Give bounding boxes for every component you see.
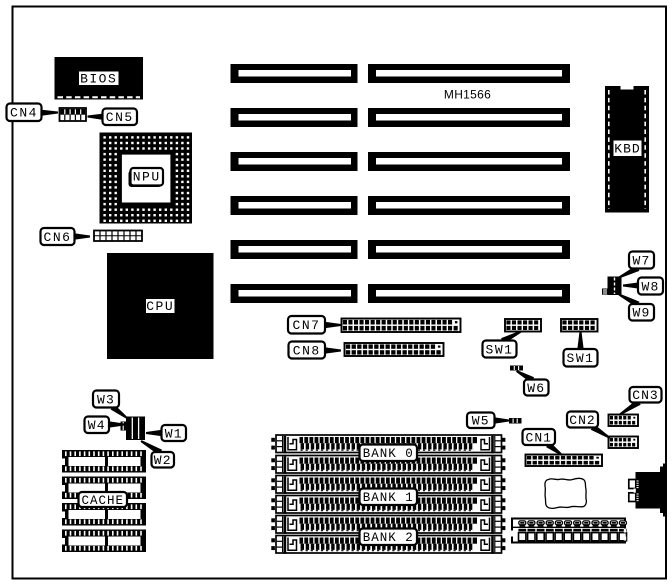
svg-text:CN6: CN6 — [44, 230, 72, 245]
svg-text:W8: W8 — [641, 279, 659, 294]
svg-text:CN5: CN5 — [106, 110, 134, 125]
svg-text:BIOS: BIOS — [80, 72, 117, 87]
svg-text:W5: W5 — [472, 414, 490, 429]
svg-text:SW1: SW1 — [567, 351, 595, 366]
svg-text:CN3: CN3 — [632, 388, 658, 403]
svg-text:CN2: CN2 — [569, 413, 595, 428]
svg-text:CN1: CN1 — [526, 430, 552, 445]
svg-text:W9: W9 — [632, 306, 650, 321]
svg-text:W3: W3 — [97, 392, 115, 407]
svg-text:CPU: CPU — [146, 299, 174, 314]
svg-text:SW1: SW1 — [486, 342, 514, 357]
svg-text:MH1566: MH1566 — [444, 88, 491, 102]
svg-text:NPU: NPU — [133, 170, 161, 185]
svg-text:KBD: KBD — [614, 142, 640, 157]
svg-text:BANK 2: BANK 2 — [363, 531, 414, 545]
svg-text:CN7: CN7 — [293, 318, 321, 333]
svg-text:W7: W7 — [632, 253, 650, 268]
svg-text:CN4: CN4 — [10, 106, 38, 121]
svg-text:CN8: CN8 — [293, 343, 321, 358]
svg-text:W1: W1 — [165, 426, 183, 441]
svg-text:W6: W6 — [527, 381, 545, 396]
svg-text:CACHE: CACHE — [81, 494, 124, 508]
svg-text:BANK 1: BANK 1 — [363, 491, 414, 505]
svg-text:W2: W2 — [154, 453, 172, 468]
svg-text:W4: W4 — [88, 418, 106, 433]
svg-text:BANK 0: BANK 0 — [363, 447, 414, 461]
